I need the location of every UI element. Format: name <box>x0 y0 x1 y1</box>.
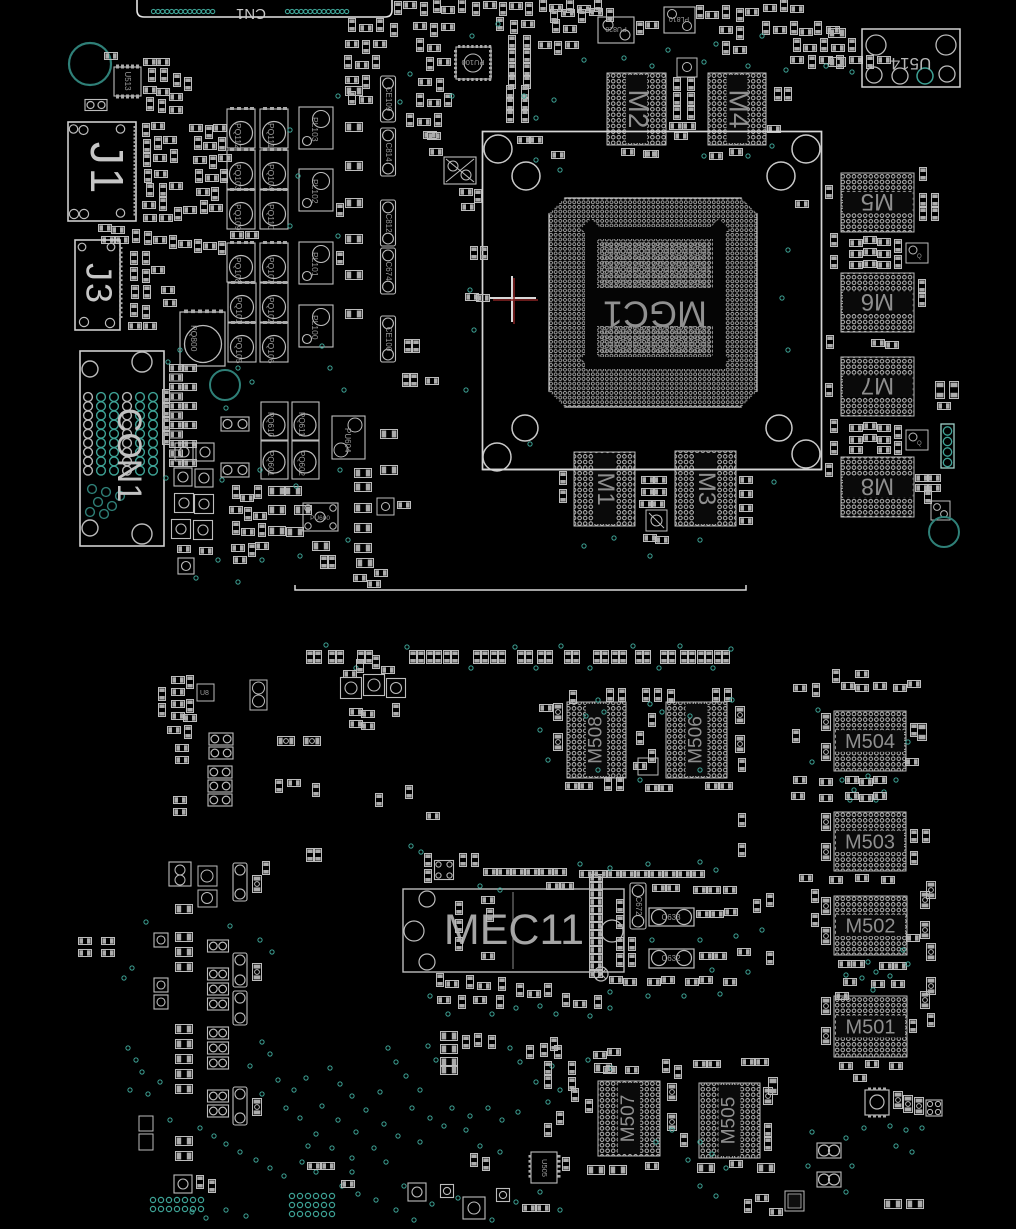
svg-text:M6: M6 <box>861 288 894 315</box>
svg-text:M505: M505 <box>719 1097 740 1145</box>
svg-text:C632: C632 <box>661 954 681 963</box>
svg-text:PU820: PU820 <box>605 25 627 32</box>
svg-text:PU604: PU604 <box>343 428 352 453</box>
svg-text:PQ112: PQ112 <box>233 123 243 149</box>
svg-text:U505: U505 <box>540 1159 549 1177</box>
svg-text:CON1: CON1 <box>110 408 148 502</box>
svg-text:M2: M2 <box>623 90 654 129</box>
svg-text:M5: M5 <box>861 188 894 215</box>
svg-text:C814: C814 <box>384 142 393 162</box>
svg-text:CE109: CE109 <box>384 87 393 112</box>
svg-text:PQ611: PQ611 <box>297 412 306 437</box>
svg-text:M508: M508 <box>586 716 607 764</box>
svg-text:PU600: PU600 <box>310 515 330 522</box>
svg-text:CE100: CE100 <box>384 327 393 352</box>
svg-text:M504: M504 <box>845 731 895 753</box>
svg-text:PQ800: PQ800 <box>189 325 199 352</box>
svg-text:PQ601: PQ601 <box>266 451 275 476</box>
svg-text:PL810: PL810 <box>669 15 689 22</box>
svg-text:PQ105: PQ105 <box>234 337 244 364</box>
svg-text:PL102: PL102 <box>310 179 320 204</box>
svg-text:PQ102: PQ102 <box>266 297 276 324</box>
svg-text:PQ107: PQ107 <box>266 257 276 284</box>
svg-text:PQ602: PQ602 <box>297 451 306 476</box>
svg-text:CN1: CN1 <box>236 5 266 22</box>
svg-text:C633: C633 <box>661 913 681 922</box>
svg-text:J3: J3 <box>78 263 119 305</box>
svg-text:PQ109: PQ109 <box>233 204 243 231</box>
svg-text:PQ110: PQ110 <box>266 204 276 230</box>
svg-text:C672: C672 <box>634 896 643 916</box>
svg-text:PQ103: PQ103 <box>233 164 243 191</box>
svg-text:MGC1: MGC1 <box>603 293 707 334</box>
svg-text:M507: M507 <box>618 1095 639 1143</box>
svg-text:C674: C674 <box>384 261 393 281</box>
svg-text:U8: U8 <box>200 690 209 697</box>
svg-text:M7: M7 <box>861 372 894 399</box>
svg-text:U514: U514 <box>891 54 932 73</box>
svg-text:M501: M501 <box>845 1017 895 1039</box>
svg-text:M4: M4 <box>724 90 755 129</box>
svg-text:PQ101: PQ101 <box>234 297 244 324</box>
svg-text:PQ610: PQ610 <box>266 412 275 437</box>
svg-text:PU100: PU100 <box>462 58 485 67</box>
svg-text:M8: M8 <box>861 472 894 499</box>
svg-text:U513: U513 <box>123 71 132 91</box>
svg-text:M503: M503 <box>845 832 895 854</box>
svg-text:Q: Q <box>917 254 922 260</box>
svg-text:Q: Q <box>917 441 922 447</box>
svg-text:PQ111: PQ111 <box>266 123 276 148</box>
svg-text:M502: M502 <box>845 916 895 938</box>
svg-text:M506: M506 <box>686 716 707 764</box>
svg-text:PQ108: PQ108 <box>233 257 243 284</box>
svg-text:PQ104: PQ104 <box>266 164 276 191</box>
svg-text:MEC11: MEC11 <box>444 906 584 954</box>
svg-text:C812: C812 <box>384 213 393 233</box>
svg-text:PL101: PL101 <box>310 252 320 277</box>
svg-text:PL103: PL103 <box>310 117 320 142</box>
svg-text:PL100: PL100 <box>310 315 320 340</box>
svg-text:M1: M1 <box>592 472 619 505</box>
svg-text:PQ106: PQ106 <box>266 337 276 364</box>
svg-text:M3: M3 <box>693 472 720 505</box>
svg-text:J1: J1 <box>81 142 133 197</box>
